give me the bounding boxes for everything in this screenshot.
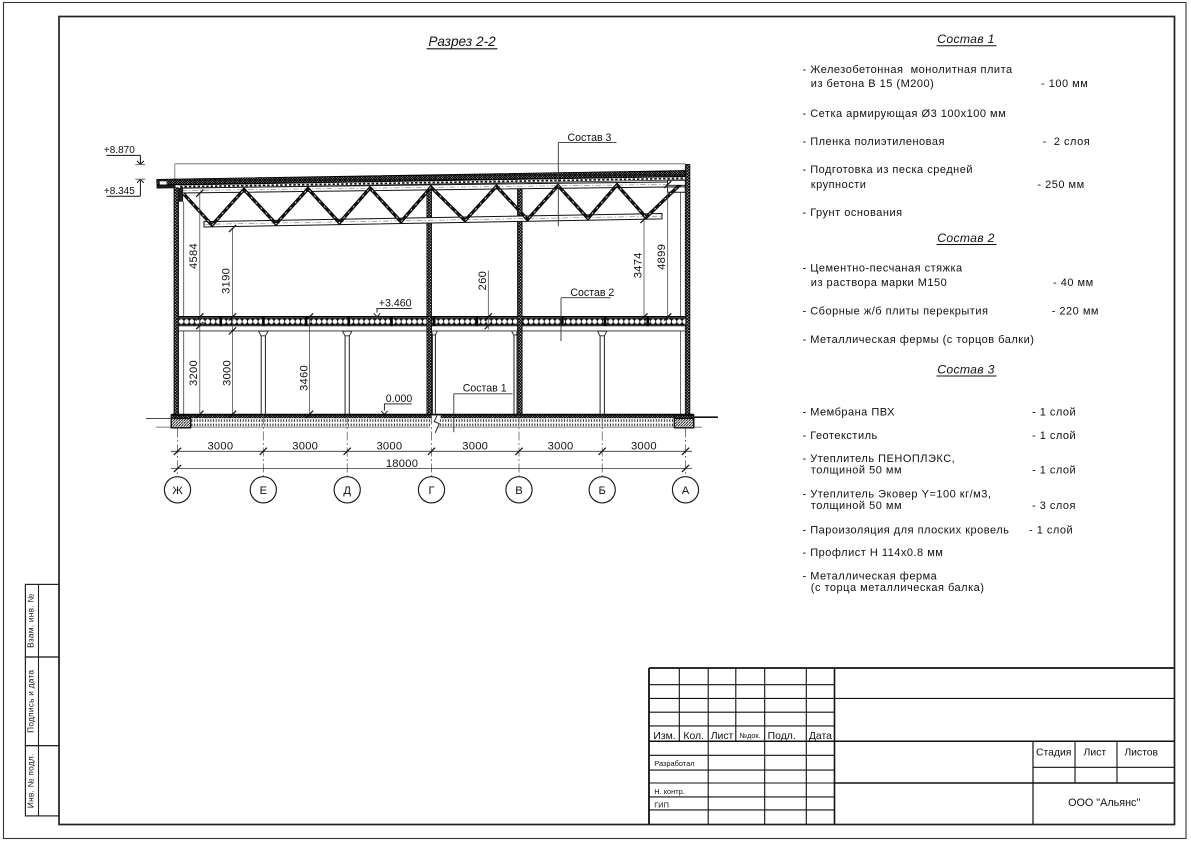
svg-text:- Металлическая ферма: - Металлическая ферма [803,570,938,582]
svg-text:Д: Д [343,485,351,497]
svg-text:4899: 4899 [656,244,668,270]
svg-text:- 100 мм: - 100 мм [1041,78,1088,90]
svg-text:3000: 3000 [462,440,488,452]
svg-text:из раствора марки М150: из раствора марки М150 [811,277,947,289]
svg-text:Изм.: Изм. [653,731,675,742]
svg-text:Подпись и дата: Подпись и дата [25,670,35,733]
svg-text:Стадия: Стадия [1036,747,1071,758]
svg-text:толщиной 50 мм: толщиной 50 мм [811,464,902,476]
svg-text:ГИП: ГИП [654,800,669,809]
svg-text:- Сборные ж/б плиты перекрытия: - Сборные ж/б плиты перекрытия [803,306,989,318]
svg-text:- Пароизоляция для плоских кро: - Пароизоляция для плоских кровель [803,524,1010,536]
svg-text:Подл.: Подл. [768,731,796,742]
svg-text:Состав 1: Состав 1 [937,32,994,46]
svg-text:- Мембрана ПВХ: - Мембрана ПВХ [803,406,896,418]
svg-text:Состав 2: Состав 2 [570,287,614,299]
svg-text:3000: 3000 [631,440,657,452]
svg-text:3200: 3200 [188,360,200,386]
svg-text:3190: 3190 [221,268,233,294]
svg-text:- 220 мм: - 220 мм [1052,306,1099,318]
svg-text:Е: Е [260,485,267,497]
svg-text:4584: 4584 [188,243,200,269]
svg-text:Инв. № подл.: Инв. № подл. [25,753,35,808]
svg-text:- 1 слой: - 1 слой [1032,464,1076,476]
svg-text:А: А [682,485,690,497]
svg-text:3460: 3460 [299,365,311,391]
svg-text:- Цементно-песчаная стяжка: - Цементно-песчаная стяжка [803,263,964,275]
svg-text:+8.870: +8.870 [104,145,135,156]
svg-text:- Сетка армирующая Ø3 100х100: - Сетка армирующая Ø3 100х100 мм [803,108,1007,120]
svg-text:№док.: №док. [739,731,760,740]
svg-text:- Железобетонная монолитная п: - Железобетонная монолитная плита [803,64,1013,76]
svg-text:Б: Б [599,485,606,497]
svg-text:- Утеплитель Эковер Y=100 кг/м: - Утеплитель Эковер Y=100 кг/м3, [803,488,992,500]
svg-text:ООО "Альянс": ООО "Альянс" [1068,797,1140,809]
svg-text:Состав 1: Состав 1 [463,382,507,394]
svg-text:3000: 3000 [376,440,402,452]
svg-text:Листов: Листов [1124,747,1158,758]
svg-text:18000: 18000 [386,458,418,470]
svg-text:Состав 2: Состав 2 [937,231,994,245]
svg-text:Состав 3: Состав 3 [937,362,994,376]
svg-text:3474: 3474 [633,252,645,278]
svg-text:Н. контр.: Н. контр. [654,787,685,796]
svg-text:Кол.: Кол. [683,731,704,742]
svg-text:(с торца металлическая балка): (с торца металлическая балка) [811,582,985,594]
svg-text:- 1 слой: - 1 слой [1029,524,1073,536]
svg-text:Состав 3: Состав 3 [568,132,612,144]
svg-text:Дата: Дата [809,731,832,742]
svg-text:- Металлическая фермы (с торцо: - Металлическая фермы (с торцов балки) [803,334,1035,346]
svg-text:- Подготовка из песка средней: - Подготовка из песка средней [803,164,973,176]
svg-text:Лист: Лист [1084,747,1107,758]
svg-text:- 1 слой: - 1 слой [1032,430,1076,442]
svg-text:крупности: крупности [811,179,867,191]
svg-text:- Пленка полиэтиленовая: - Пленка полиэтиленовая [803,136,945,148]
svg-text:толщиной 50 мм: толщиной 50 мм [811,500,902,512]
svg-text:В: В [515,485,522,497]
svg-text:3000: 3000 [548,440,574,452]
svg-text:- 40 мм: - 40 мм [1053,277,1094,289]
svg-text:0.000: 0.000 [386,393,413,405]
svg-text:- 2 слоя: - 2 слоя [1043,136,1091,148]
svg-text:+8.345: +8.345 [104,186,135,197]
svg-text:3000: 3000 [292,440,318,452]
svg-text:Ж: Ж [172,485,183,497]
svg-text:Разрез 2-2: Разрез 2-2 [428,34,496,49]
svg-text:- 1 слой: - 1 слой [1032,406,1076,418]
svg-text:- 250 мм: - 250 мм [1037,179,1084,191]
svg-text:из бетона В 15 (М200): из бетона В 15 (М200) [811,78,934,90]
svg-text:260: 260 [477,271,489,290]
svg-text:- Грунт основания: - Грунт основания [803,207,903,219]
svg-text:Разработал: Разработал [654,759,694,768]
svg-text:- 3 слоя: - 3 слоя [1032,500,1076,512]
svg-text:3000: 3000 [222,360,234,386]
svg-text:- Утеплитель ПЕНОПЛЭКС,: - Утеплитель ПЕНОПЛЭКС, [803,453,956,465]
svg-text:+3.460: +3.460 [379,298,412,310]
svg-text:Лист: Лист [711,731,734,742]
svg-text:3000: 3000 [207,440,233,452]
svg-text:Взам. инв. №: Взам. инв. № [25,593,35,647]
svg-text:- Геотекстиль: - Геотекстиль [803,430,878,442]
svg-text:- Профлист Н 114х0.8 мм: - Профлист Н 114х0.8 мм [803,547,944,559]
svg-text:Г: Г [428,485,434,497]
